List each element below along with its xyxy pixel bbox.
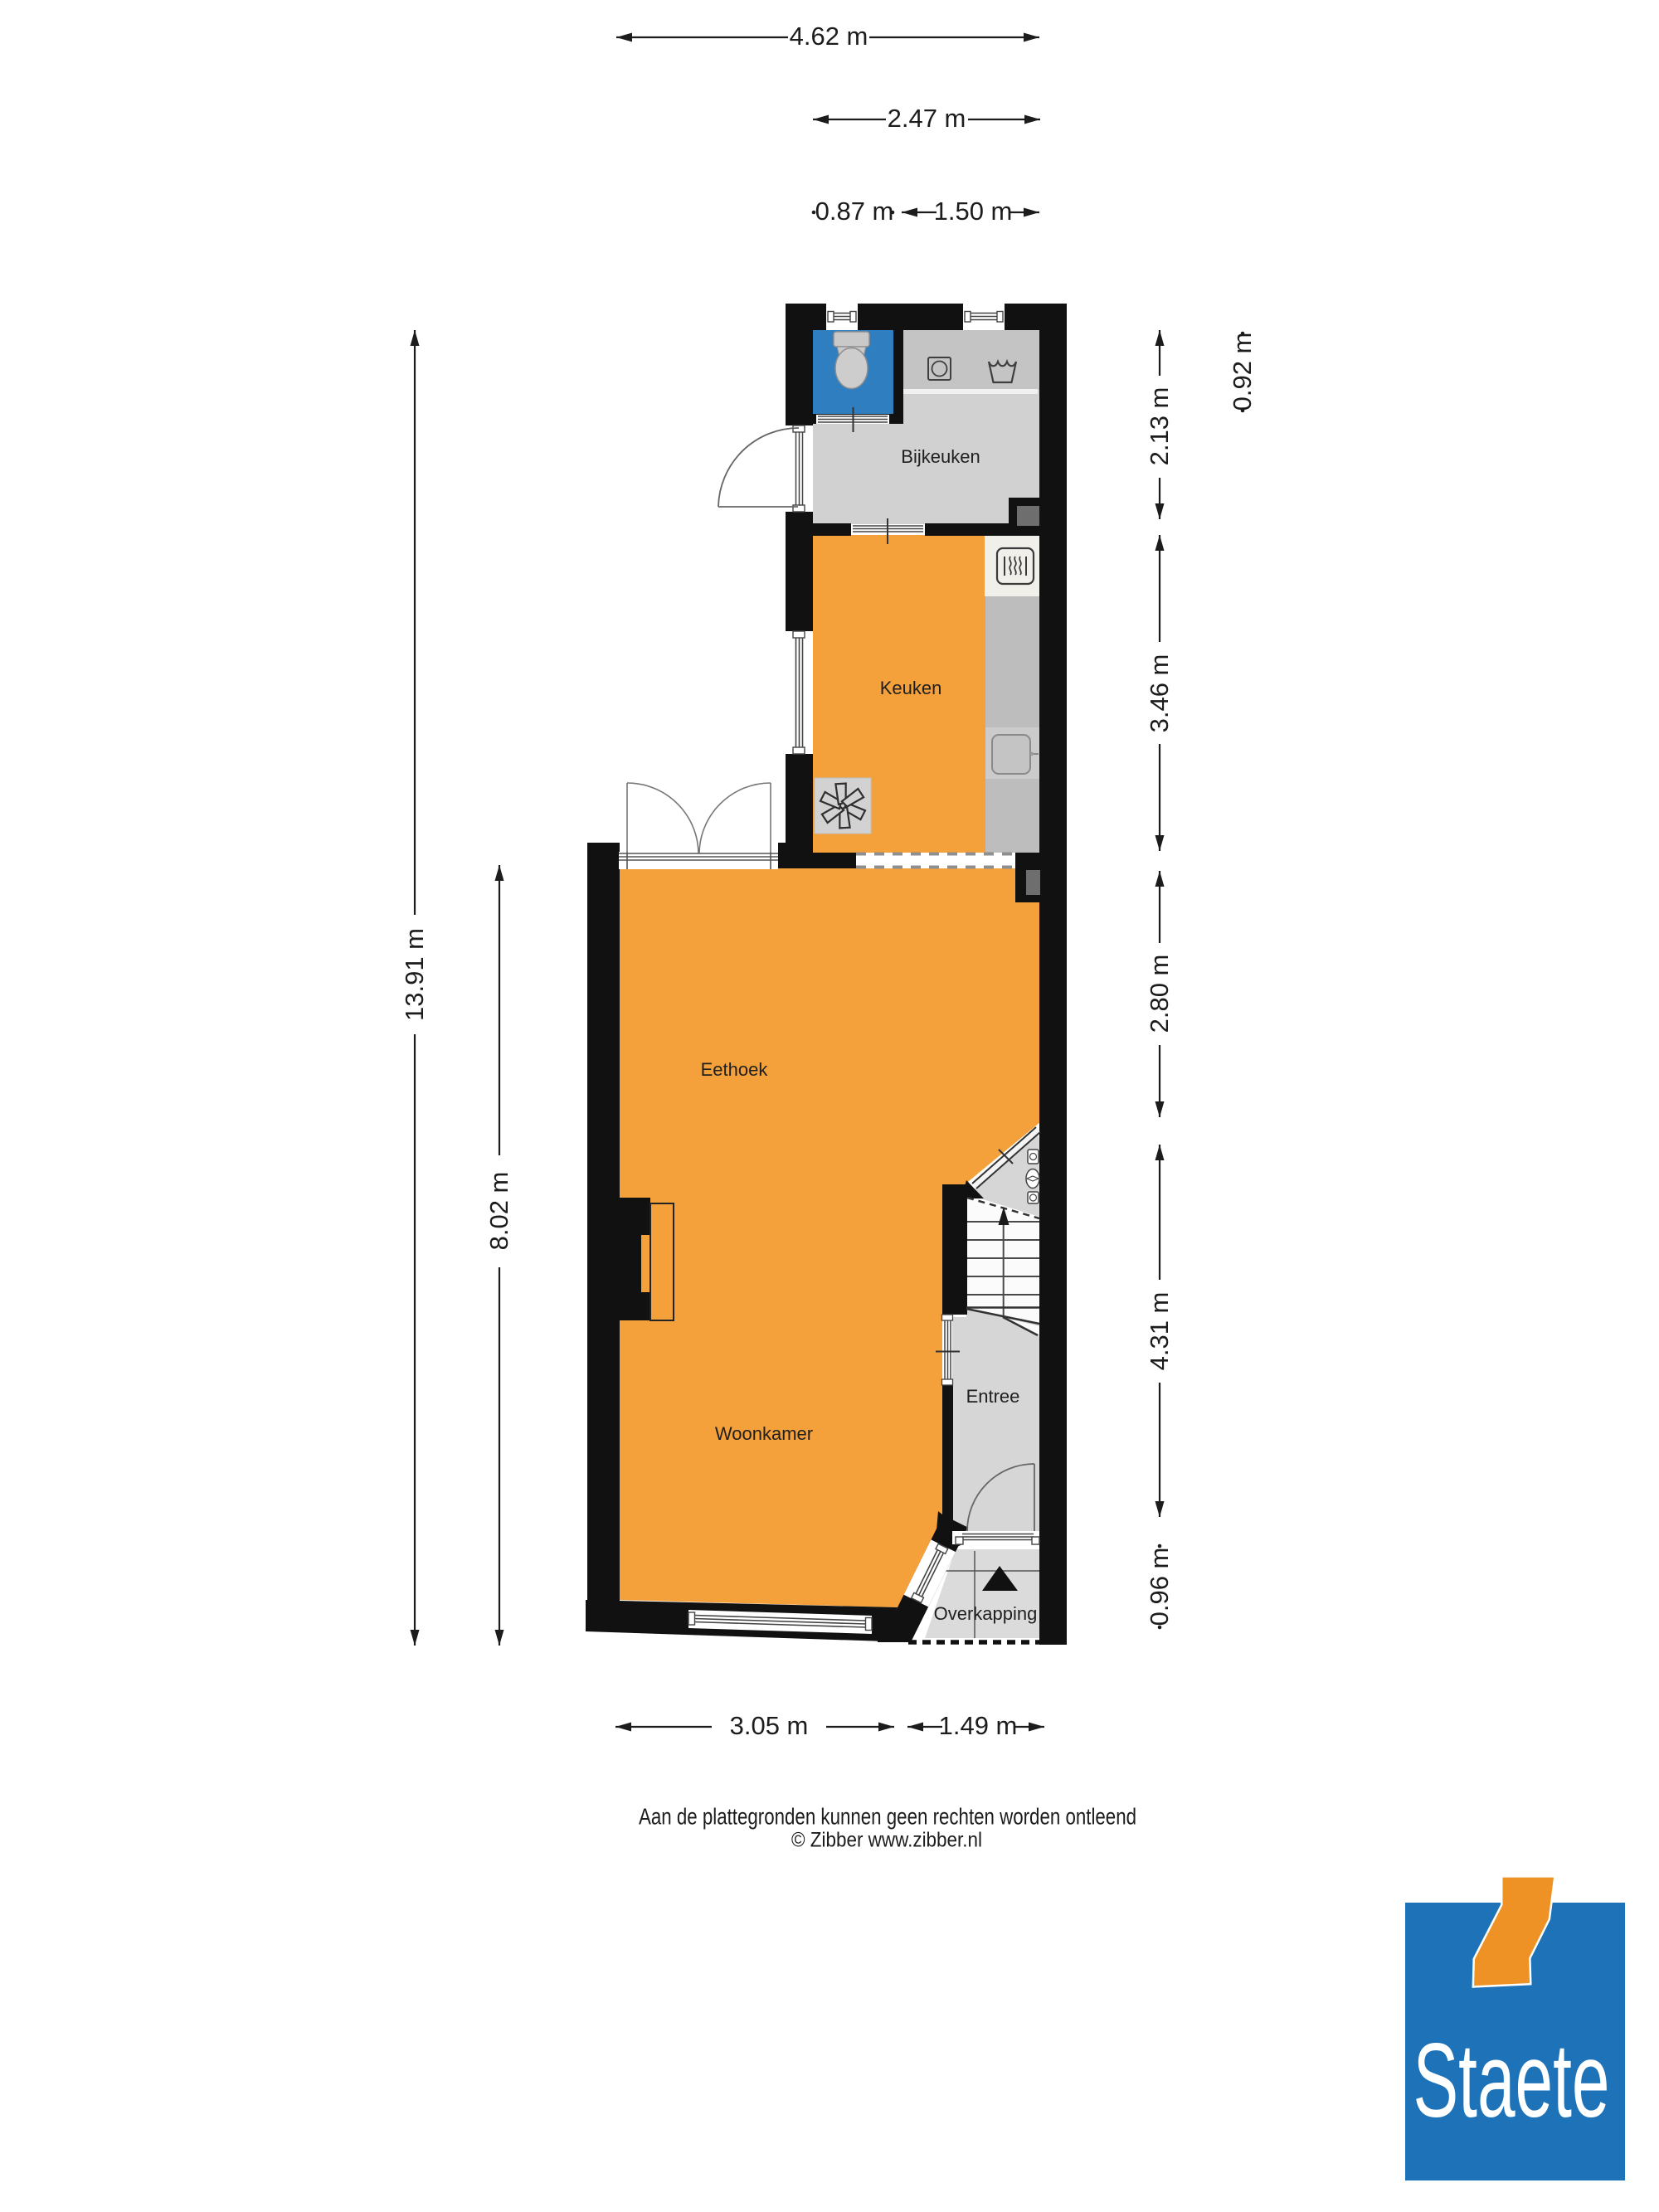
svg-text:Keuken: Keuken	[880, 678, 942, 698]
svg-text:Eethoek: Eethoek	[701, 1059, 769, 1080]
svg-text:3.05 m: 3.05 m	[730, 1711, 809, 1740]
svg-text:4.62 m: 4.62 m	[790, 22, 868, 51]
svg-text:4.31 m: 4.31 m	[1145, 1292, 1174, 1371]
svg-text:Bijkeuken: Bijkeuken	[901, 446, 980, 467]
svg-text:1.49 m: 1.49 m	[939, 1711, 1018, 1740]
svg-text:2.80 m: 2.80 m	[1145, 955, 1174, 1033]
svg-text:© Zibber www.zibber.nl: © Zibber www.zibber.nl	[791, 1829, 982, 1852]
svg-text:13.91 m: 13.91 m	[400, 928, 429, 1021]
svg-text:8.02 m: 8.02 m	[484, 1172, 513, 1251]
svg-text:Entree: Entree	[966, 1386, 1020, 1407]
svg-text:0.96 m: 0.96 m	[1145, 1548, 1174, 1626]
svg-text:0.92 m: 0.92 m	[1228, 333, 1257, 411]
svg-text:0.87 m: 0.87 m	[815, 197, 894, 226]
svg-text:1.50 m: 1.50 m	[934, 197, 1013, 226]
svg-text:2.47 m: 2.47 m	[888, 104, 966, 133]
svg-text:2.13 m: 2.13 m	[1145, 387, 1174, 466]
svg-text:Staete: Staete	[1413, 2021, 1610, 2139]
svg-text:3.46 m: 3.46 m	[1145, 654, 1174, 733]
svg-text:Aan de plattegronden kunnen ge: Aan de plattegronden kunnen geen rechten…	[639, 1803, 1136, 1829]
svg-text:Overkapping: Overkapping	[934, 1603, 1038, 1624]
svg-text:Woonkamer: Woonkamer	[715, 1423, 813, 1444]
